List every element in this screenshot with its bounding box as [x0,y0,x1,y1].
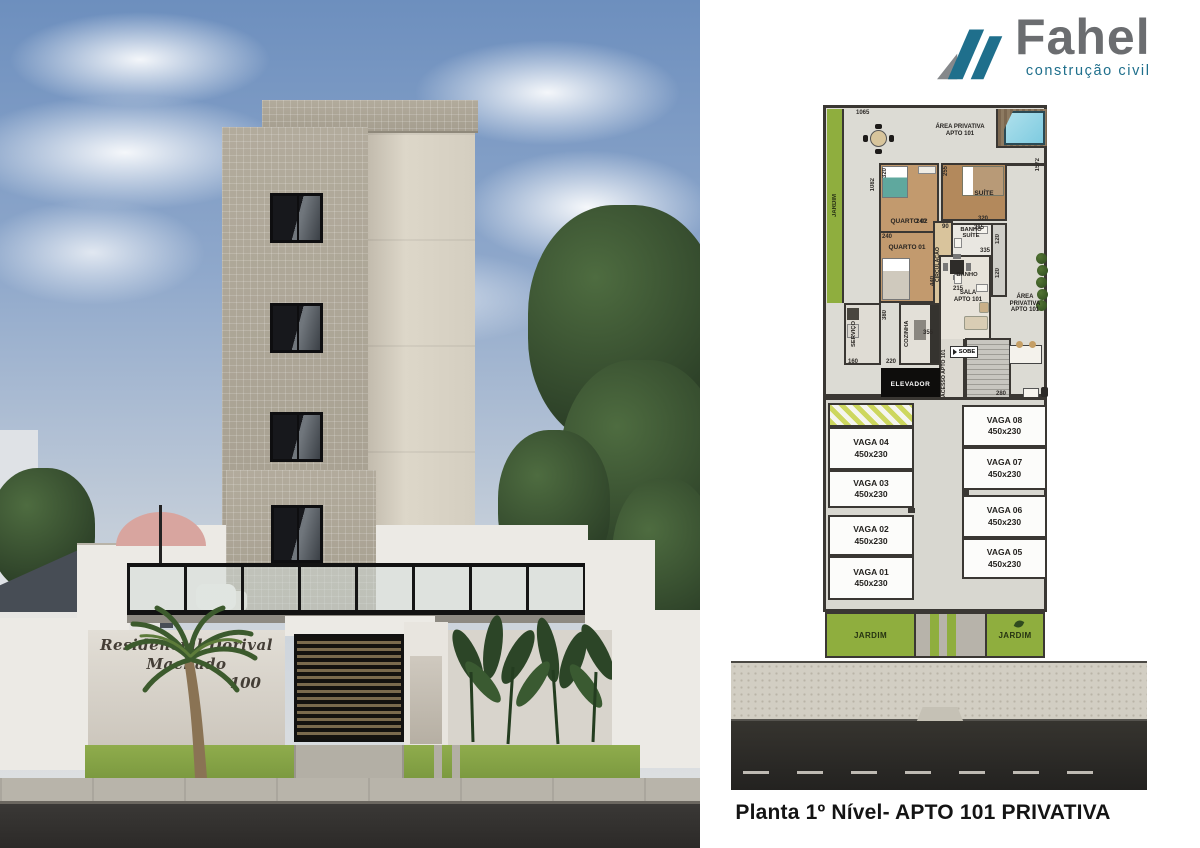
vaga-02: VAGA 02 450x230 [828,515,914,556]
lane-dash [905,771,931,774]
front-wall-left [0,618,88,770]
brand-text: Fahel construção civil [1015,14,1151,79]
dim-cozinha-top: 355 [923,330,933,336]
dim-sala-left: 440 [930,276,936,286]
vaga-name: VAGA 07 [987,457,1022,468]
stool [1029,341,1036,348]
dim-suite-bottom: 320 [978,216,988,222]
area-privativa-top-label: ÁREA PRIVATIVA APTO 101 [934,124,986,137]
lane-dash [1013,771,1039,774]
photo-street [0,804,700,848]
patio-chair [889,135,894,142]
elevator-label: ELEVADOR [891,381,931,388]
dim-banho-suite-top: 215 [974,225,984,231]
dim-quarto01-left: 240 [882,234,892,240]
vaga-07: VAGA 07 450x230 [962,447,1047,490]
vaga-size: 450x230 [854,489,887,500]
hedge-plant [1036,253,1047,264]
wardrobe [918,166,936,174]
garage-gate [294,634,404,742]
stool [1016,341,1023,348]
circulacao-label: CIRCULAÇÃO [936,236,942,294]
cloud [10,12,270,107]
dining-chair [966,263,971,271]
garden-bottom-right: JARDIM [985,612,1045,658]
driveway [916,612,985,658]
umbrella-pole [159,505,162,567]
vaga-05: VAGA 05 450x230 [962,538,1047,579]
dim-left-side: 1082 [870,178,876,191]
lane-dash [1067,771,1093,774]
vaga-name: VAGA 01 [853,567,888,578]
garden-strip-label: JARDIM [832,194,838,217]
lane-dash [797,771,823,774]
patio-chair [875,124,882,129]
garden-bottom-left: JARDIM [825,612,916,658]
dim-cozinha-bottom: 220 [886,359,896,365]
window-3 [270,412,323,462]
terrace-window [271,505,323,563]
lane-dash [851,771,877,774]
dining-chair [943,263,948,271]
vaga-size: 450x230 [854,536,887,547]
quarto02-label: QUARTO 02 [881,218,937,225]
balcony-counter [1009,345,1042,364]
sobe-arrow-icon [953,349,957,355]
dim-sala-top: 335 [980,248,990,254]
vaga-size: 450x230 [988,469,1021,480]
vaga-name: VAGA 05 [987,547,1022,558]
plan-street [731,721,1147,790]
vaga-08: VAGA 08 450x230 [962,405,1047,447]
floor-plan: JARDIM ÁREA PRIVATIVA APTO 101 [823,103,1047,661]
cloud [0,200,205,305]
banho-label: BANHO [954,272,980,278]
elevator: ELEVADOR [881,368,940,400]
dim-circ-top: 90 [942,224,949,230]
vaga-size: 450x230 [988,559,1021,570]
plan-sidewalk [731,661,1147,721]
patio-chair [875,149,882,154]
sofa [964,316,988,330]
window-2 [270,303,323,353]
sobe-box: SOBE [950,346,978,358]
dim-lot-right: 1572 [1035,158,1041,171]
patio-chair [863,135,868,142]
sobe-label: SOBE [959,349,975,355]
vaga-size: 450x230 [988,517,1021,528]
quarto01-label: QUARTO 01 [881,244,933,251]
lane-dash [959,771,985,774]
paver-strip [452,745,460,778]
garden-row: JARDIM JARDIM [823,612,1047,660]
cozinha-label: COZINHA [904,313,910,355]
area-privativa-right-label: ÁREA PRIVATIVA APTO 101 [1002,294,1048,314]
dim-lot-top: 1065 [856,110,869,116]
paver-strip [434,745,442,778]
lane-dash [743,771,769,774]
garden-label: JARDIM [854,631,887,640]
palm-tree [115,598,285,780]
vaga-03: VAGA 03 450x230 [828,470,914,508]
dining-chair [953,254,961,259]
dim-servico-right: 380 [882,310,888,320]
wall-stub [908,508,915,513]
vaga-size: 450x230 [988,426,1021,437]
sala-label: SALA APTO 101 [953,290,983,303]
dim-banho-right: 120 [995,268,1001,278]
dim-quarto02-right: 240 [916,219,926,225]
equipment-box [1041,387,1048,397]
garden-strip-left: JARDIM [827,109,844,303]
servico-label: SERVIÇO [851,313,857,355]
hedge-plant [1037,265,1048,276]
marketing-sheet: Residencial Dorival Machado 100 [0,0,1200,848]
dim-suite-left: 255 [943,166,949,176]
apartment-level: JARDIM ÁREA PRIVATIVA APTO 101 [823,105,1047,397]
vaga-06: VAGA 06 450x230 [962,495,1047,538]
vaga-name: VAGA 06 [987,505,1022,516]
garden-label: JARDIM [998,631,1031,640]
driveway-green-strip [930,614,939,656]
vaga-name: VAGA 04 [853,437,888,448]
ramp-hatch [828,403,914,427]
bed-quarto01 [882,258,910,300]
vaga-name: VAGA 08 [987,415,1022,426]
parking-level: VAGA 04 450x230 VAGA 03 450x230 VAGA 02 … [823,397,1047,612]
curb-ramp [909,707,971,722]
tropical-plants [438,612,623,752]
dim-banho-bottom: 215 [953,286,963,292]
company-logo: Fahel construção civil [933,14,1151,90]
photo-sidewalk [0,778,700,804]
dim-quarto02-left: 320 [882,168,888,178]
hedge-plant [1036,277,1047,288]
dim-servico-bottom: 160 [848,359,858,365]
acesso-label: ACESSO APTO 101 [942,348,948,398]
window-1 [270,193,323,243]
brand-name: Fahel [1015,14,1151,60]
gate-driveway [294,745,404,778]
wall-stub [962,490,969,495]
vaga-name: VAGA 02 [853,524,888,535]
plan-caption: Planta 1º Nível- APTO 101 PRIVATIVA [723,801,1123,825]
vaga-size: 450x230 [854,449,887,460]
vaga-04: VAGA 04 450x230 [828,427,914,470]
lane-markings [743,771,1093,774]
brand-tagline: construção civil [1015,63,1151,79]
fahel-logo-icon [933,14,1007,90]
dim-banho-suite-right: 120 [995,234,1001,244]
building-photo: Residencial Dorival Machado 100 [0,0,700,848]
vaga-01: VAGA 01 450x230 [828,556,914,600]
vaga-size: 450x230 [854,578,887,589]
leaf-icon [1014,619,1025,630]
armchair [979,302,989,313]
suite-label: SUÍTE [964,190,1004,197]
patio-table [870,130,887,147]
driveway-green-strip [947,614,956,656]
vaga-name: VAGA 03 [853,478,888,489]
